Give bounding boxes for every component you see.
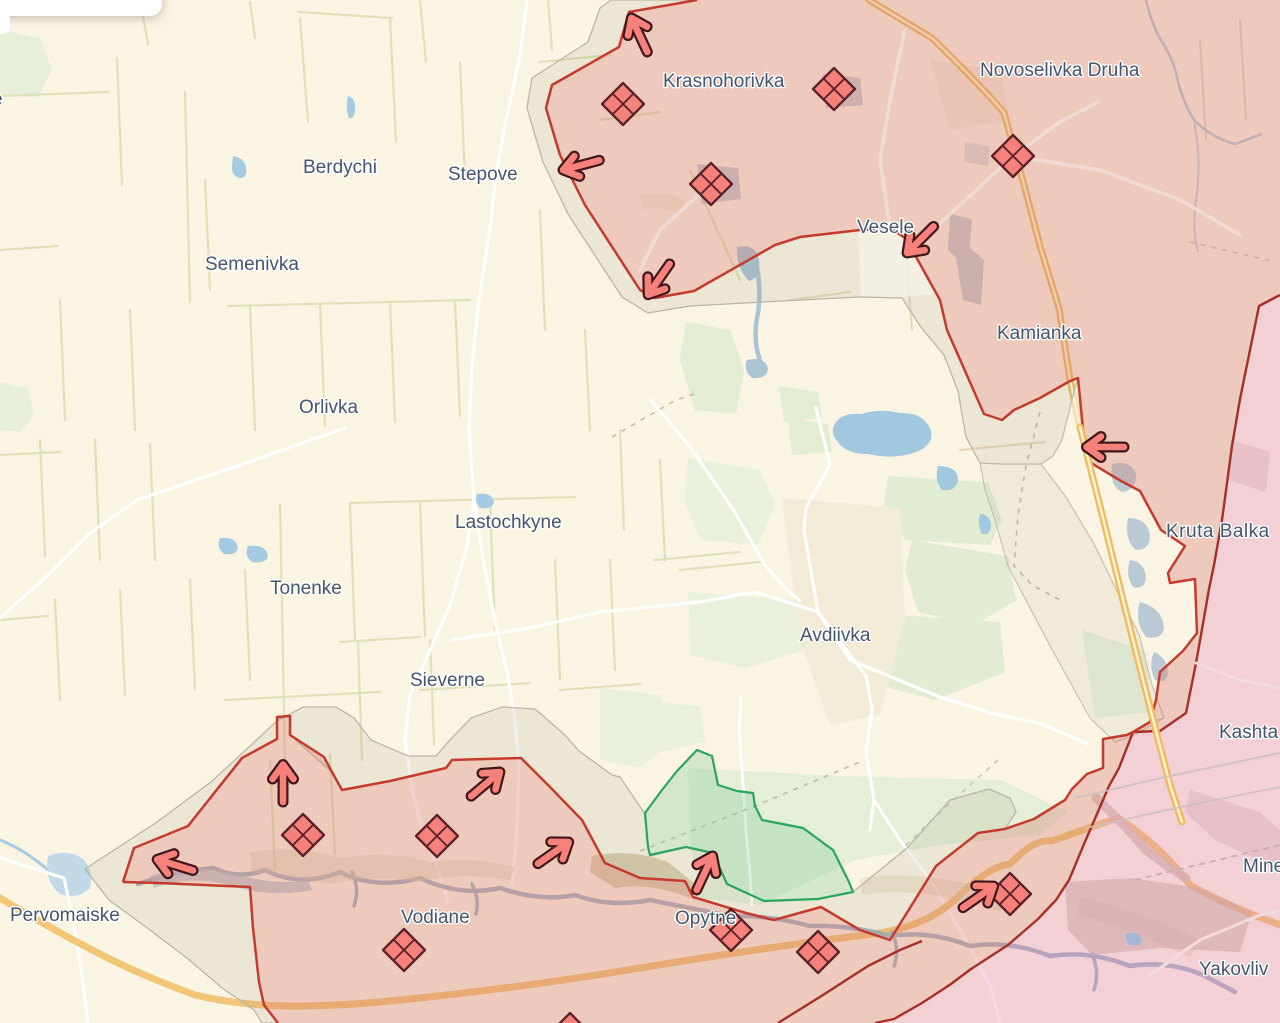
svg-text:Krasnohorivka: Krasnohorivka — [663, 71, 785, 92]
svg-text:Sieverne: Sieverne — [410, 670, 485, 691]
svg-text:Kashta: Kashta — [1219, 722, 1279, 743]
svg-text:Novoselivka Druha: Novoselivka Druha — [980, 60, 1140, 81]
svg-text:Avdiivka: Avdiivka — [800, 625, 871, 646]
svg-text:Vodiane: Vodiane — [401, 907, 470, 928]
svg-text:Yakovliv: Yakovliv — [1199, 959, 1269, 980]
svg-text:Orlivka: Orlivka — [299, 397, 359, 418]
svg-text:Stepove: Stepove — [448, 164, 518, 185]
svg-text:Kamianka: Kamianka — [997, 323, 1082, 344]
svg-text:Mine: Mine — [1243, 856, 1280, 877]
svg-text:e: e — [0, 89, 3, 110]
svg-text:Vesele: Vesele — [857, 217, 914, 238]
svg-text:Tonenke: Tonenke — [270, 578, 342, 599]
svg-text:Berdychi: Berdychi — [303, 157, 377, 178]
svg-text:Pervomaiske: Pervomaiske — [10, 905, 120, 926]
svg-text:Semenivka: Semenivka — [205, 254, 299, 275]
svg-text:Opytne: Opytne — [675, 908, 736, 929]
svg-text:Lastochkyne: Lastochkyne — [455, 512, 562, 533]
svg-text:Kruta Balka: Kruta Balka — [1166, 521, 1270, 542]
